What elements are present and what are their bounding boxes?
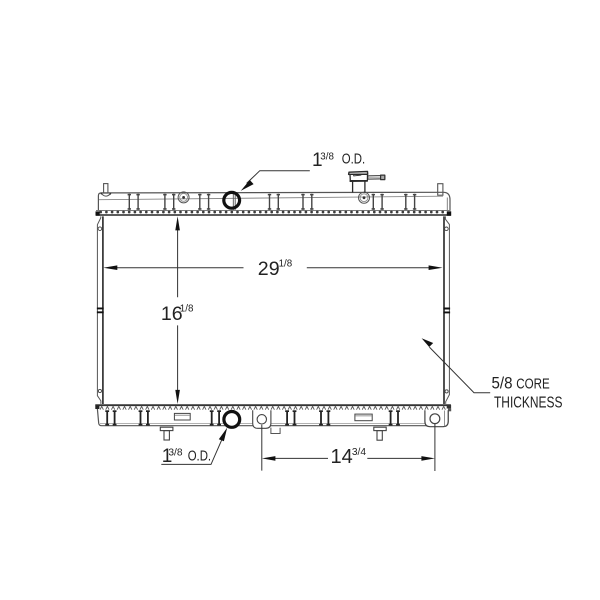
svg-text:O.D.: O.D. (188, 449, 211, 465)
svg-text:1/8: 1/8 (180, 304, 194, 315)
svg-text:5/8: 5/8 (492, 373, 513, 392)
svg-text:3/8: 3/8 (320, 151, 334, 162)
svg-text:3/4: 3/4 (352, 447, 366, 458)
svg-text:29: 29 (258, 258, 280, 280)
svg-text:14: 14 (331, 446, 353, 468)
svg-text:1/8: 1/8 (279, 259, 293, 270)
svg-text:THICKNESS: THICKNESS (494, 394, 563, 411)
svg-text:3/8: 3/8 (168, 447, 182, 458)
svg-text:CORE: CORE (516, 375, 550, 392)
svg-text:O.D.: O.D. (342, 151, 365, 167)
